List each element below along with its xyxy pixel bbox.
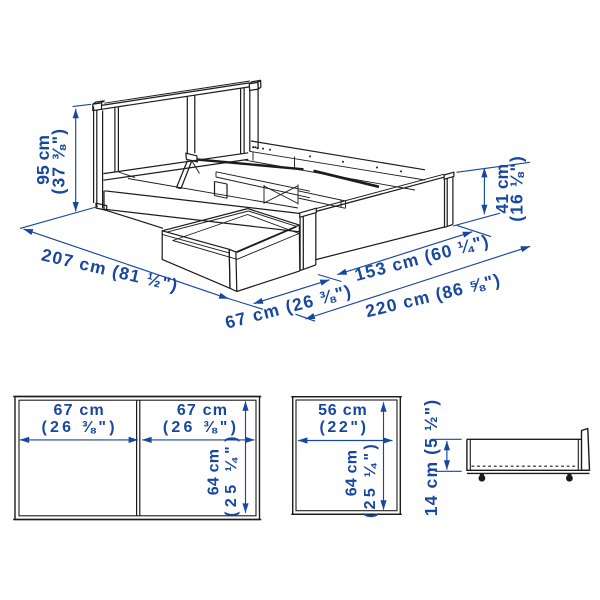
svg-text:(25 ¼"): (25 ¼") bbox=[223, 432, 240, 517]
svg-text:64 cm: 64 cm bbox=[344, 450, 361, 496]
svg-text:(16 ⅛"): (16 ⅛") bbox=[506, 155, 526, 222]
svg-text:64 cm: 64 cm bbox=[205, 449, 222, 495]
svg-text:56 cm: 56 cm bbox=[318, 402, 367, 419]
svg-text:67 cm (26 ⅜"): 67 cm (26 ⅜") bbox=[223, 281, 354, 333]
svg-text:(22"): (22") bbox=[319, 419, 368, 436]
svg-text:(26 ⅜"): (26 ⅜") bbox=[41, 419, 117, 436]
svg-text:67 cm: 67 cm bbox=[177, 402, 228, 419]
svg-text:(25 ¼"): (25 ¼") bbox=[362, 441, 379, 518]
svg-text:14 cm (5 ½"): 14 cm (5 ½") bbox=[421, 399, 441, 516]
svg-text:67 cm: 67 cm bbox=[54, 402, 105, 419]
svg-text:207 cm (81 ½"): 207 cm (81 ½") bbox=[40, 245, 181, 296]
svg-text:(37 ⅜"): (37 ⅜") bbox=[49, 128, 69, 195]
